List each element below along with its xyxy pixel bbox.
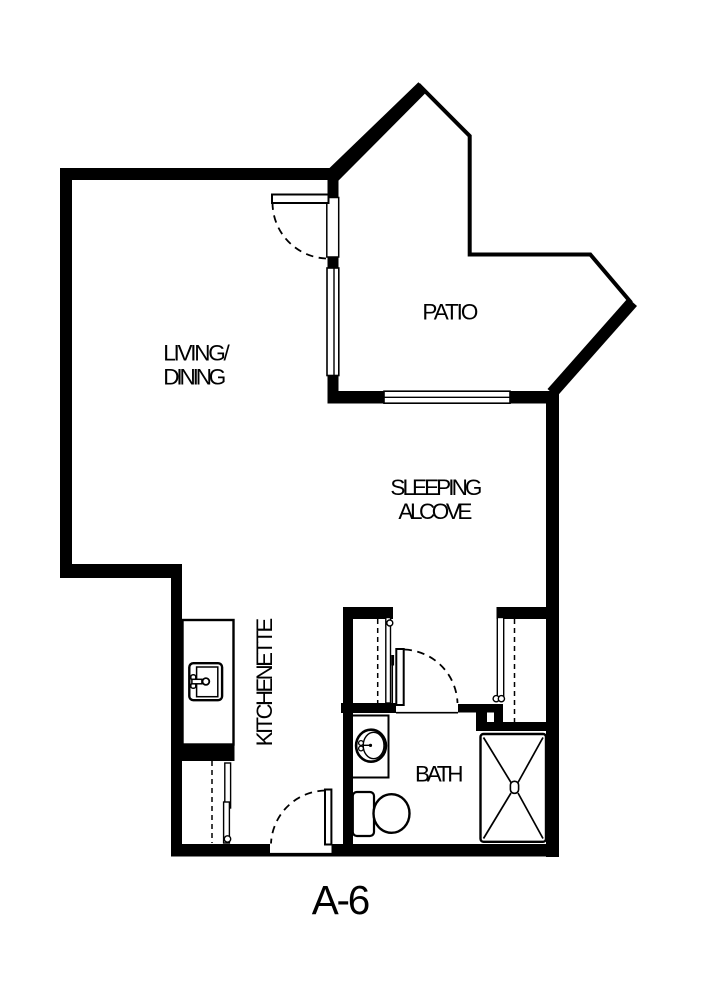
- svg-text:DINING: DINING: [163, 365, 226, 390]
- svg-text:KITCHENETTE: KITCHENETTE: [252, 618, 277, 747]
- svg-text:ALCOVE: ALCOVE: [398, 499, 472, 524]
- svg-text:A-6: A-6: [312, 877, 371, 923]
- svg-text:BATH: BATH: [415, 762, 464, 787]
- svg-text:PATIO: PATIO: [422, 300, 478, 325]
- svg-text:SLEEPING: SLEEPING: [390, 475, 482, 500]
- svg-text:LIVING/: LIVING/: [163, 341, 230, 366]
